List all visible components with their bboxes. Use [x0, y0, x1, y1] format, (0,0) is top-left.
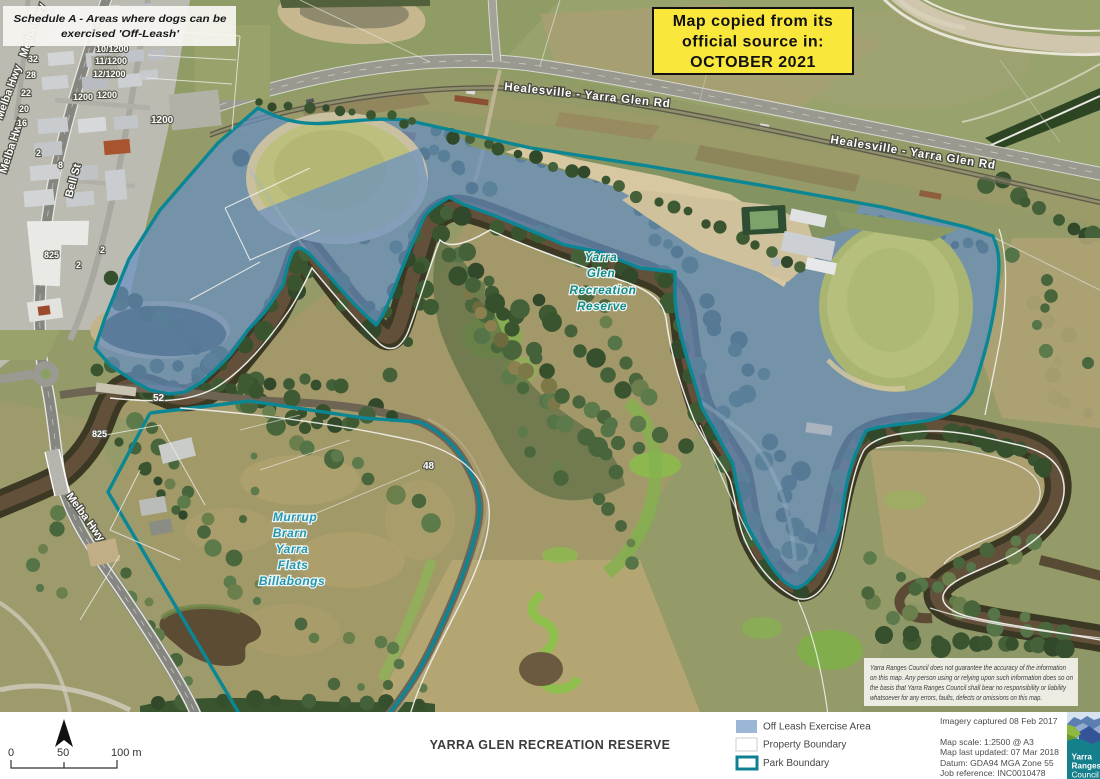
svg-text:Yarra: Yarra [1072, 753, 1093, 762]
svg-text:11/1200: 11/1200 [95, 56, 127, 66]
svg-text:8: 8 [58, 160, 63, 170]
svg-text:Off Leash Exercise Area: Off Leash Exercise Area [763, 722, 871, 733]
svg-text:official source in:: official source in: [682, 34, 824, 51]
svg-text:whatsoever for any errors, fau: whatsoever for any errors, faults, defec… [870, 693, 1042, 702]
svg-text:Murrup: Murrup [273, 510, 317, 524]
svg-text:2: 2 [36, 148, 41, 158]
svg-text:2: 2 [76, 260, 81, 270]
svg-text:1200: 1200 [151, 115, 174, 126]
svg-text:20: 20 [19, 104, 29, 114]
svg-text:Property Boundary: Property Boundary [763, 740, 846, 751]
svg-text:on this map. Any person using: on this map. Any person using or relying… [870, 673, 1073, 682]
svg-text:Billabongs: Billabongs [259, 574, 325, 588]
svg-text:Glen: Glen [587, 266, 616, 280]
svg-text:Park Boundary: Park Boundary [763, 758, 829, 769]
svg-text:the basis that Yarra Ranges Co: the basis that Yarra Ranges Council shal… [870, 683, 1067, 692]
svg-text:32: 32 [28, 54, 38, 64]
svg-text:12/1200: 12/1200 [93, 69, 126, 79]
svg-text:825: 825 [44, 250, 59, 260]
svg-text:Council: Council [1072, 771, 1099, 779]
svg-text:1200: 1200 [97, 90, 117, 100]
svg-text:22: 22 [21, 88, 31, 98]
svg-text:Yarra: Yarra [585, 250, 618, 264]
svg-text:Map copied from its: Map copied from its [673, 13, 834, 30]
svg-text:OCTOBER 2021: OCTOBER 2021 [690, 54, 816, 71]
svg-text:16: 16 [17, 118, 27, 128]
svg-text:2: 2 [100, 245, 105, 255]
svg-text:48: 48 [423, 461, 435, 472]
svg-text:Schedule A - Areas where dogs: Schedule A - Areas where dogs can be [14, 13, 227, 25]
svg-text:Brarn: Brarn [273, 526, 308, 540]
svg-text:1200: 1200 [73, 92, 93, 102]
svg-text:100 m: 100 m [111, 747, 142, 759]
svg-text:Yarra Ranges Council does not: Yarra Ranges Council does not guarantee … [870, 663, 1066, 672]
svg-text:Flats: Flats [278, 558, 309, 572]
svg-text:28: 28 [26, 70, 36, 80]
svg-text:50: 50 [57, 747, 69, 759]
svg-text:Yarra: Yarra [276, 542, 309, 556]
svg-text:Ranges: Ranges [1072, 762, 1100, 771]
svg-text:825: 825 [92, 429, 107, 439]
svg-text:Recreation: Recreation [570, 283, 637, 297]
svg-text:52: 52 [153, 393, 165, 404]
svg-text:exercised 'Off-Leash': exercised 'Off-Leash' [61, 28, 180, 40]
svg-text:0: 0 [8, 747, 14, 759]
svg-text:Reserve: Reserve [577, 299, 627, 313]
